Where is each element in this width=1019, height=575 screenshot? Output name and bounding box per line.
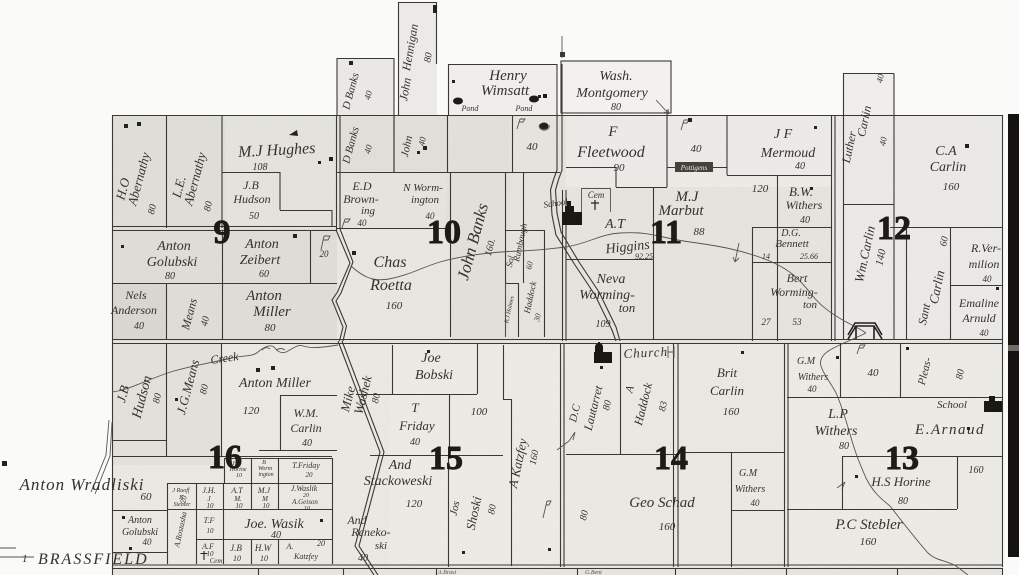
svg-text:A.T: A.T bbox=[230, 486, 243, 495]
svg-text:40: 40 bbox=[983, 274, 993, 284]
svg-text:A.Brast: A.Brast bbox=[437, 570, 457, 575]
svg-text:ski: ski bbox=[375, 540, 387, 552]
svg-text:Carlin: Carlin bbox=[290, 421, 321, 435]
svg-text:160: 160 bbox=[943, 181, 960, 193]
svg-text:Church: Church bbox=[623, 344, 668, 361]
svg-text:T.Friday: T.Friday bbox=[292, 461, 320, 470]
svg-text:T.F: T.F bbox=[204, 516, 215, 525]
svg-text:Mermoud: Mermoud bbox=[760, 146, 816, 161]
svg-text:N Worm-: N Worm- bbox=[402, 182, 443, 194]
svg-text:J.B: J.B bbox=[230, 543, 242, 553]
svg-text:And: And bbox=[388, 458, 413, 473]
svg-text:W.M.: W.M. bbox=[294, 406, 319, 420]
svg-text:R.Ver-: R.Ver- bbox=[970, 241, 1001, 255]
svg-text:1: 1 bbox=[22, 553, 28, 565]
svg-text:F: F bbox=[607, 124, 618, 140]
svg-text:92.25: 92.25 bbox=[635, 252, 653, 261]
svg-text:10: 10 bbox=[236, 502, 244, 510]
svg-text:Bennett: Bennett bbox=[775, 238, 810, 250]
svg-text:10: 10 bbox=[207, 502, 215, 510]
svg-text:Anton Wradliski: Anton Wradliski bbox=[18, 475, 144, 494]
svg-text:80: 80 bbox=[839, 441, 849, 452]
svg-text:40: 40 bbox=[143, 537, 153, 547]
svg-text:A.: A. bbox=[286, 542, 294, 551]
svg-text:T: T bbox=[411, 400, 419, 415]
svg-text:10: 10 bbox=[263, 502, 271, 510]
svg-text:Carlin: Carlin bbox=[710, 383, 744, 398]
svg-text:Zeibert: Zeibert bbox=[240, 253, 282, 268]
svg-text:Miller: Miller bbox=[252, 304, 291, 320]
svg-text:Geo Schad: Geo Schad bbox=[629, 495, 695, 511]
svg-text:80: 80 bbox=[265, 322, 277, 334]
svg-text:Hudson: Hudson bbox=[232, 192, 270, 206]
svg-text:40: 40 bbox=[527, 141, 539, 153]
svg-text:Stackoweski: Stackoweski bbox=[364, 474, 433, 489]
svg-text:Stebler: Stebler bbox=[174, 502, 192, 508]
svg-text:10: 10 bbox=[427, 214, 461, 251]
svg-text:G.M: G.M bbox=[797, 356, 816, 367]
svg-text:Carlin: Carlin bbox=[930, 160, 967, 175]
svg-text:20: 20 bbox=[317, 539, 325, 548]
svg-text:80: 80 bbox=[611, 102, 621, 113]
svg-text:Fleetwood: Fleetwood bbox=[576, 144, 646, 161]
svg-text:ington: ington bbox=[258, 472, 273, 478]
svg-text:160: 160 bbox=[723, 406, 740, 418]
svg-text:A.T: A.T bbox=[604, 217, 626, 232]
svg-text:Friday: Friday bbox=[398, 418, 435, 433]
svg-text:10: 10 bbox=[304, 506, 310, 512]
svg-text:60: 60 bbox=[259, 269, 269, 280]
svg-text:10: 10 bbox=[207, 527, 215, 535]
svg-text:14: 14 bbox=[654, 440, 688, 477]
svg-text:Montgomery: Montgomery bbox=[575, 86, 648, 101]
svg-text:Cem: Cem bbox=[210, 557, 223, 565]
svg-text:10: 10 bbox=[260, 554, 268, 563]
svg-text:30: 30 bbox=[532, 313, 543, 324]
svg-text:Arnuld: Arnuld bbox=[961, 311, 996, 325]
svg-text:H.W: H.W bbox=[254, 543, 273, 553]
svg-text:Pond: Pond bbox=[461, 104, 480, 113]
svg-text:Anton: Anton bbox=[245, 288, 282, 304]
svg-text:88: 88 bbox=[694, 226, 706, 238]
svg-text:108: 108 bbox=[253, 162, 268, 173]
svg-text:J.H.: J.H. bbox=[202, 486, 215, 495]
svg-text:J.B: J.B bbox=[243, 178, 259, 192]
svg-text:120: 120 bbox=[406, 498, 423, 510]
svg-text:120: 120 bbox=[243, 405, 260, 417]
svg-text:16: 16 bbox=[208, 439, 242, 476]
svg-text:ington: ington bbox=[411, 194, 440, 206]
svg-text:90: 90 bbox=[614, 162, 626, 174]
svg-text:M.J: M.J bbox=[257, 486, 271, 495]
svg-text:160: 160 bbox=[969, 465, 984, 476]
svg-text:13: 13 bbox=[885, 440, 919, 477]
svg-text:50: 50 bbox=[249, 211, 259, 222]
svg-text:25.66: 25.66 bbox=[800, 252, 818, 261]
svg-text:B.W.: B.W. bbox=[789, 184, 813, 199]
svg-text:Anton: Anton bbox=[244, 237, 278, 252]
svg-text:J F: J F bbox=[774, 127, 793, 142]
svg-text:E.Arnaud: E.Arnaud bbox=[914, 422, 985, 438]
svg-text:Anton: Anton bbox=[156, 239, 190, 254]
svg-text:Wimsatt: Wimsatt bbox=[481, 83, 530, 99]
svg-text:A.Geison: A.Geison bbox=[291, 498, 318, 506]
svg-text:40: 40 bbox=[302, 438, 312, 449]
svg-text:11: 11 bbox=[650, 214, 682, 251]
svg-text:80: 80 bbox=[422, 52, 435, 64]
svg-text:40: 40 bbox=[410, 437, 420, 448]
svg-text:15: 15 bbox=[429, 440, 463, 477]
svg-text:160: 160 bbox=[386, 300, 403, 312]
svg-text:14: 14 bbox=[762, 252, 770, 261]
svg-text:40: 40 bbox=[808, 384, 818, 394]
svg-text:Roetta: Roetta bbox=[369, 277, 412, 294]
svg-text:40: 40 bbox=[358, 553, 368, 564]
svg-text:Worming-: Worming- bbox=[770, 285, 818, 299]
svg-text:40: 40 bbox=[271, 530, 281, 541]
svg-text:Anton: Anton bbox=[127, 515, 152, 526]
svg-text:160: 160 bbox=[860, 536, 877, 548]
svg-text:120: 120 bbox=[752, 183, 769, 195]
svg-text:27: 27 bbox=[762, 317, 772, 327]
svg-text:40: 40 bbox=[691, 143, 703, 155]
svg-text:B: B bbox=[179, 495, 183, 501]
svg-text:20: 20 bbox=[320, 249, 330, 259]
svg-text:40: 40 bbox=[134, 321, 144, 332]
svg-text:53: 53 bbox=[793, 317, 803, 327]
svg-text:Henry: Henry bbox=[488, 68, 527, 84]
svg-text:Golubski: Golubski bbox=[147, 255, 198, 270]
svg-text:60: 60 bbox=[141, 491, 153, 503]
svg-text:109: 109 bbox=[596, 319, 611, 330]
svg-text:Withers: Withers bbox=[815, 424, 858, 439]
svg-text:Wash.: Wash. bbox=[599, 69, 632, 84]
svg-text:Brown-: Brown- bbox=[343, 192, 379, 206]
svg-text:20: 20 bbox=[306, 471, 314, 479]
svg-text:100: 100 bbox=[471, 406, 488, 418]
svg-text:80: 80 bbox=[165, 271, 175, 282]
svg-text:Golubski: Golubski bbox=[122, 527, 158, 538]
svg-text:L.P: L.P bbox=[827, 407, 848, 422]
svg-text:9: 9 bbox=[214, 214, 231, 251]
svg-text:P.C Stebler: P.C Stebler bbox=[834, 517, 902, 533]
svg-text:Anton Miller: Anton Miller bbox=[238, 376, 311, 391]
svg-text:Chas: Chas bbox=[374, 254, 407, 271]
svg-text:Bert: Bert bbox=[787, 271, 808, 285]
svg-text:Cem: Cem bbox=[588, 190, 605, 200]
svg-text:ton: ton bbox=[619, 300, 636, 315]
svg-text:G.Bent: G.Bent bbox=[585, 570, 602, 575]
svg-text:Katzfey: Katzfey bbox=[293, 552, 318, 561]
svg-text:Pottigens: Pottigens bbox=[680, 164, 708, 172]
svg-text:40: 40 bbox=[795, 161, 805, 172]
svg-text:Reneko-: Reneko- bbox=[350, 525, 390, 539]
svg-text:40: 40 bbox=[800, 215, 810, 226]
svg-text:ton: ton bbox=[803, 299, 818, 311]
svg-text:12: 12 bbox=[877, 210, 911, 247]
svg-text:J.Waslik: J.Waslik bbox=[291, 484, 318, 493]
svg-text:E.D: E.D bbox=[352, 179, 372, 193]
svg-text:Withers: Withers bbox=[798, 372, 829, 383]
svg-text:Emaline: Emaline bbox=[958, 296, 1000, 310]
svg-text:Nels: Nels bbox=[124, 288, 147, 302]
svg-text:Brit: Brit bbox=[717, 365, 738, 380]
svg-text:10: 10 bbox=[233, 554, 241, 563]
svg-text:80: 80 bbox=[898, 496, 908, 507]
svg-text:C.A: C.A bbox=[935, 144, 957, 159]
svg-text:Withers: Withers bbox=[735, 484, 766, 495]
svg-text:J Ruoff: J Ruoff bbox=[172, 487, 190, 494]
svg-text:Bobski: Bobski bbox=[415, 368, 453, 383]
svg-text:BRASSFIELD: BRASSFIELD bbox=[38, 551, 149, 568]
svg-text:Anderson: Anderson bbox=[110, 303, 157, 317]
svg-text:G.M: G.M bbox=[739, 468, 758, 479]
svg-text:School: School bbox=[937, 399, 967, 411]
svg-text:40: 40 bbox=[751, 498, 761, 508]
svg-text:40: 40 bbox=[980, 328, 990, 338]
svg-text:Pond: Pond bbox=[515, 104, 534, 113]
svg-text:Withers: Withers bbox=[786, 198, 823, 212]
svg-text:milion: milion bbox=[969, 257, 1000, 271]
svg-text:Neva: Neva bbox=[596, 272, 626, 287]
svg-text:160: 160 bbox=[659, 521, 676, 533]
svg-text:40: 40 bbox=[868, 367, 880, 379]
svg-text:40: 40 bbox=[358, 218, 368, 228]
svg-text:ing: ing bbox=[361, 205, 376, 217]
svg-text:Joe: Joe bbox=[421, 351, 440, 366]
